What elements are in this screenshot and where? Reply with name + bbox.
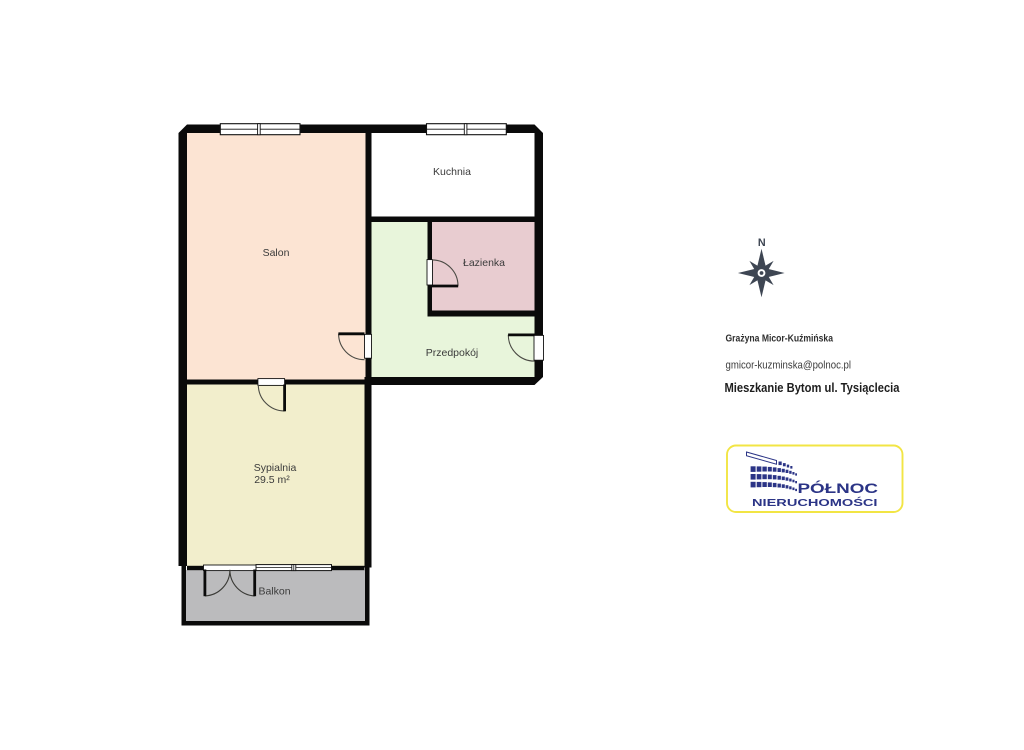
svg-text:N: N bbox=[758, 237, 766, 249]
svg-text:Przedpokój: Przedpokój bbox=[426, 347, 479, 359]
svg-text:Grażyna Micor-Kuźmińska: Grażyna Micor-Kuźmińska bbox=[726, 333, 834, 345]
svg-text:PÓŁNOC: PÓŁNOC bbox=[798, 481, 879, 496]
svg-text:gmicor-kuzminska@polnoc.pl: gmicor-kuzminska@polnoc.pl bbox=[726, 360, 852, 372]
svg-text:29.5 m²: 29.5 m² bbox=[254, 474, 290, 486]
svg-text:Kuchnia: Kuchnia bbox=[433, 166, 471, 178]
svg-text:Mieszkanie Bytom ul. Tysiąclec: Mieszkanie Bytom ul. Tysiąclecia bbox=[725, 380, 901, 395]
svg-text:Salon: Salon bbox=[263, 247, 290, 259]
svg-text:Balkon: Balkon bbox=[258, 586, 290, 598]
svg-text:Łazienka: Łazienka bbox=[463, 257, 505, 269]
svg-text:NIERUCHOMOŚCI: NIERUCHOMOŚCI bbox=[752, 497, 878, 509]
svg-text:Sypialnia: Sypialnia bbox=[254, 462, 297, 474]
